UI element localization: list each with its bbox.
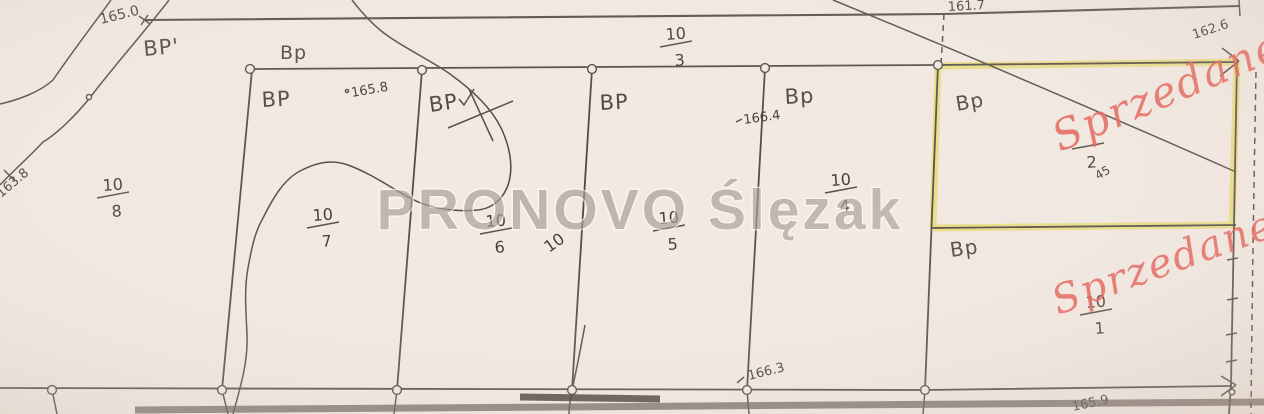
photo-vignette <box>0 0 1264 414</box>
cadastral-map: BP'BpBPBPBPBpBpBp 165.0165.8166.4163.816… <box>0 0 1264 414</box>
plot-map-photo: BP'BpBPBPBPBpBpBp 165.0165.8166.4163.816… <box>0 0 1264 414</box>
